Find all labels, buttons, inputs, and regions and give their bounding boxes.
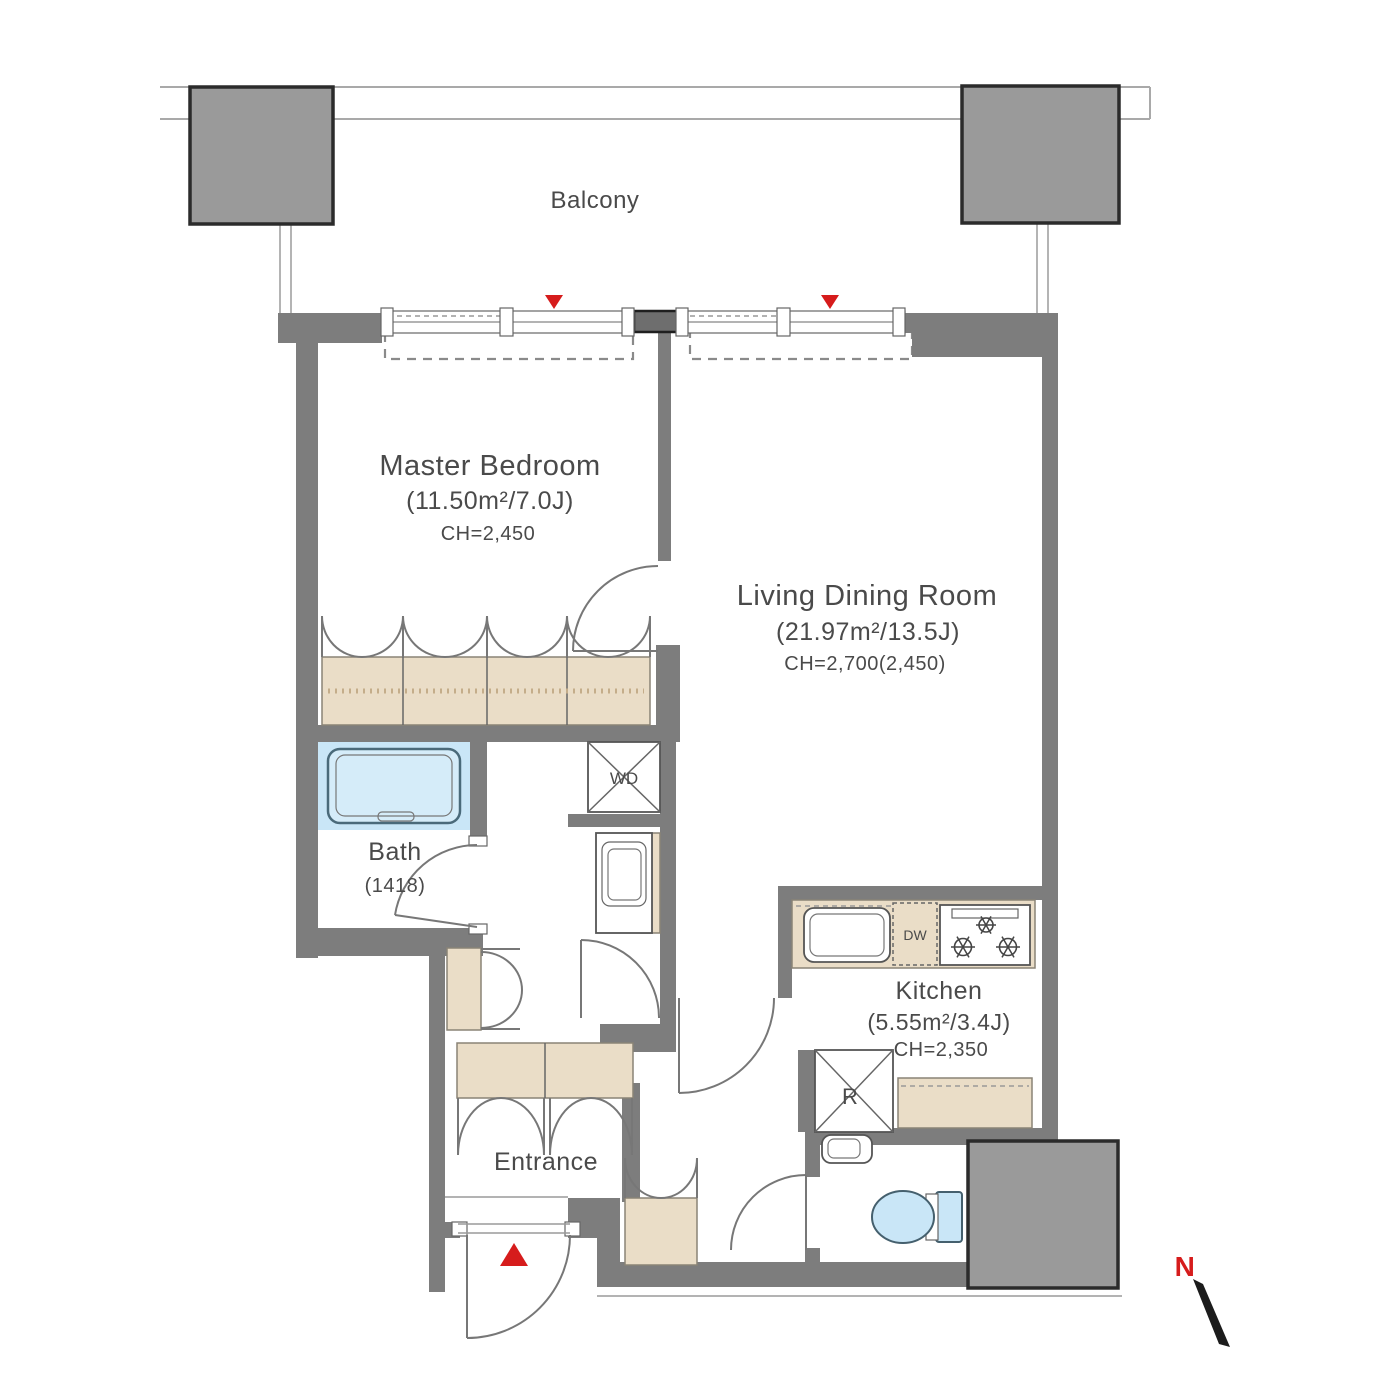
shoe-cabinet [457, 1043, 633, 1155]
compass-needle-icon [1193, 1279, 1230, 1347]
pillar-bottom-right [968, 1141, 1118, 1288]
refrigerator-label: R [842, 1084, 858, 1109]
window-marker-icon [821, 295, 839, 309]
svg-text:(21.97m²/13.5J): (21.97m²/13.5J) [776, 618, 960, 646]
svg-text:CH=2,450: CH=2,450 [441, 523, 536, 545]
kitchen-counter: DW [792, 900, 1035, 968]
floor-plan-drawing: Balcony [0, 0, 1400, 1400]
svg-text:(11.50m²/7.0J): (11.50m²/7.0J) [406, 487, 574, 515]
kitchen-area-label: (5.55m²/3.4J) [867, 1009, 1010, 1035]
kitchen-label: Kitchen [896, 977, 983, 1005]
washer-dryer-label: WD [610, 769, 638, 788]
window-marker-icon [545, 295, 563, 309]
stove-icon [940, 905, 1030, 965]
svg-text:CH=2,700(2,450): CH=2,700(2,450) [784, 653, 945, 675]
bath-size-label: (1418) [365, 875, 426, 897]
living-dining-label: Living Dining Room (21.97m²/13.5J) CH=2,… [737, 580, 997, 675]
bathtub-icon [318, 742, 470, 830]
bedroom-closet [322, 616, 650, 725]
master-bedroom-label: Master Bedroom (11.50m²/7.0J) CH=2,450 [379, 450, 600, 545]
hand-sink-icon [822, 1135, 872, 1163]
window-header-pillar [634, 311, 679, 332]
kitchen-sink-icon [804, 908, 890, 962]
living-room-door [679, 998, 774, 1093]
entrance-label: Entrance [494, 1148, 598, 1176]
svg-text:Living Dining Room: Living Dining Room [737, 580, 997, 612]
washbasin-icon [596, 833, 660, 933]
bath-label: Bath [368, 838, 421, 866]
refrigerator-space: R [815, 1050, 893, 1132]
svg-text:Master Bedroom: Master Bedroom [379, 450, 600, 482]
dishwasher-label: DW [903, 927, 927, 943]
entrance-door [452, 1222, 580, 1338]
hall-cabinet [447, 948, 522, 1030]
balcony-label: Balcony [551, 187, 640, 214]
bedroom-door [573, 566, 658, 651]
toilet-icon [872, 1191, 962, 1243]
entry-marker-icon [500, 1243, 528, 1266]
living-window [676, 308, 905, 336]
washroom-door [581, 940, 659, 1018]
bedroom-window [381, 308, 634, 336]
folding-doors-icon [458, 1098, 632, 1155]
dishwasher-space: DW [893, 903, 937, 965]
washer-dryer-space: WD [588, 742, 660, 812]
pillar-top-left [190, 87, 333, 224]
north-label: N [1175, 1251, 1196, 1282]
pillar-top-right [962, 86, 1119, 223]
kitchen-ch-label: CH=2,350 [894, 1039, 989, 1061]
wc-door [731, 1175, 806, 1250]
compass-icon: N [1175, 1251, 1230, 1347]
kitchen-side-counter [898, 1078, 1032, 1128]
floor-plan: Balcony [0, 0, 1400, 1400]
